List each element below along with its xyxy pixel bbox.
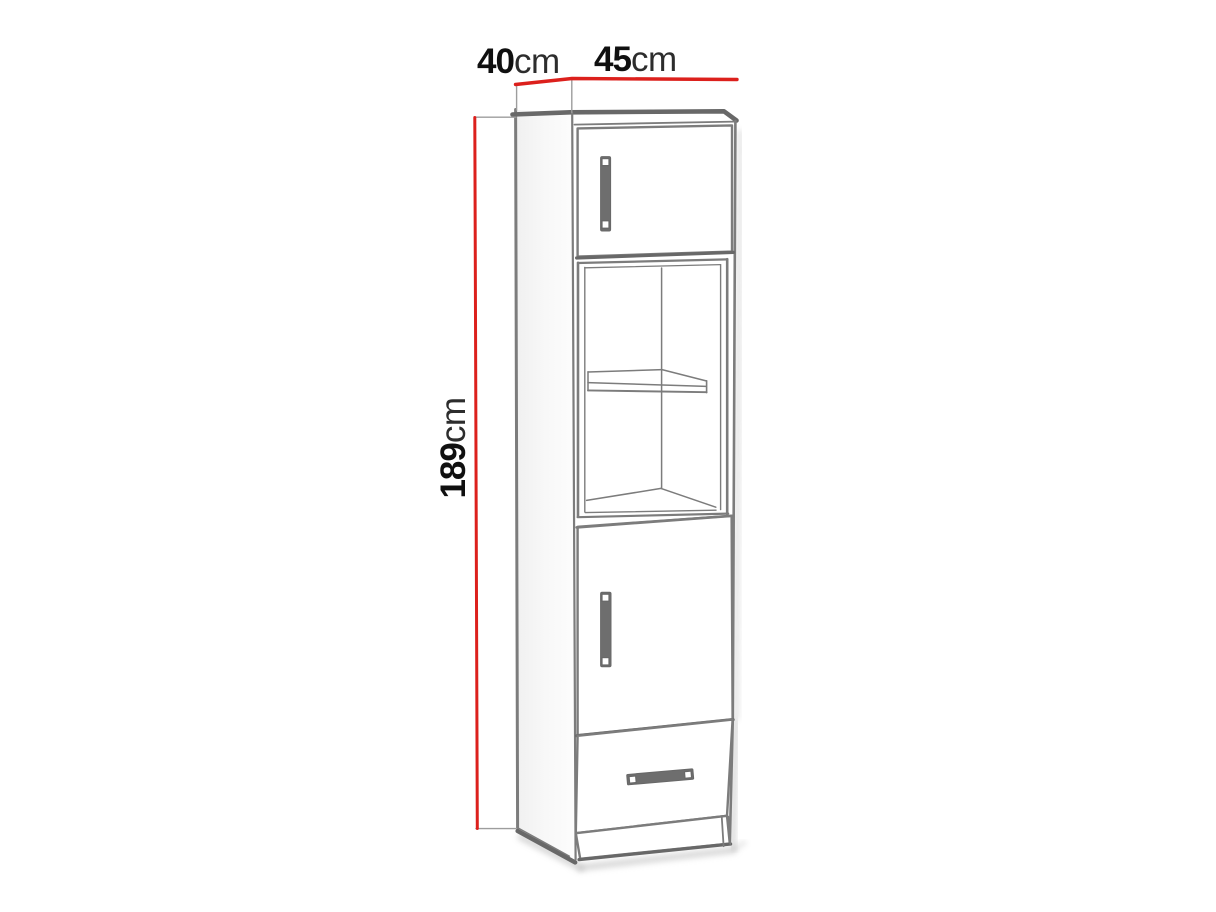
niche-top-outer [578, 259, 727, 263]
niche-floor-back-left [587, 488, 661, 500]
product-dimension-diagram: 40cm 45cm 189cm [0, 0, 1216, 912]
cabinet-sketch [0, 0, 1216, 912]
depth-label: 40cm [477, 44, 560, 79]
handle-screw-top [602, 594, 609, 601]
shelf-front-top-edge [588, 383, 706, 387]
height-label: 189cm [435, 387, 473, 509]
handle-bar [601, 157, 611, 231]
handle-screw-right [684, 771, 691, 778]
top-door [577, 125, 734, 258]
niche-top-inner [585, 265, 721, 268]
cabinet-body [513, 110, 737, 863]
right-edge-shadow [736, 132, 740, 718]
lower-door-handle [601, 592, 611, 667]
side-panel-face [516, 110, 576, 862]
handle-screw-bottom [602, 221, 609, 228]
shelf-niche [578, 259, 729, 517]
handle-screw-left [629, 776, 636, 783]
depth-unit: cm [514, 42, 560, 81]
top-door-handle [601, 157, 611, 231]
cabinet-side-panel [516, 110, 576, 863]
shelf-front-bottom-edge [588, 390, 707, 392]
width-unit: cm [631, 40, 677, 79]
width-label: 45cm [594, 42, 677, 77]
top-panel-under-edge [575, 122, 735, 125]
height-dimension-line [475, 118, 478, 829]
niche-floor-right [661, 488, 716, 507]
height-unit: cm [434, 397, 473, 443]
shelf-back-edge-left [588, 370, 662, 372]
side-panel-left-edge [516, 110, 518, 831]
middle-shelf [588, 370, 707, 393]
lower-door [577, 516, 734, 736]
handle-screw-top [602, 159, 609, 166]
handle-bar [601, 592, 611, 667]
height-value: 189 [434, 443, 473, 498]
shelf-back-edge-right [662, 370, 707, 381]
width-value: 45 [594, 40, 631, 79]
niche-floor-front-edge [585, 510, 716, 512]
drawer [576, 720, 733, 834]
handle-screw-bottom [602, 658, 609, 665]
depth-value: 40 [477, 42, 514, 81]
